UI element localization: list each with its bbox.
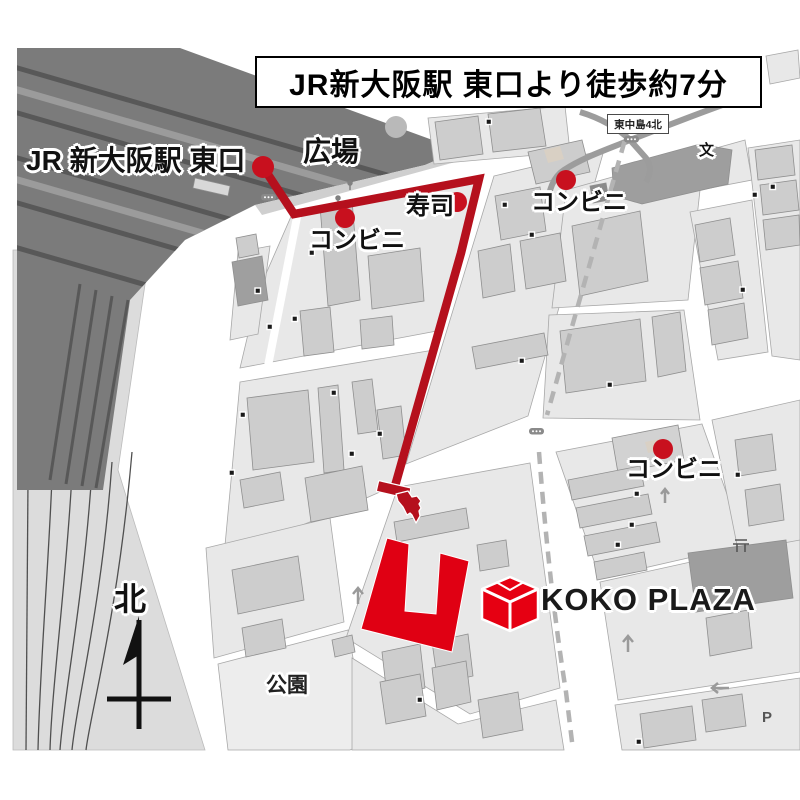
- plaza-label: 広場: [303, 137, 359, 166]
- poi-label-convenience-1: コンビニ: [309, 228, 405, 253]
- access-title: JR新大阪駅 東口より徒歩約7分: [255, 56, 762, 108]
- station-exit-dot: [252, 156, 274, 178]
- access-map: JR新大阪駅 東口より徒歩約7分 JR 新大阪駅 東口 広場 コンビニ 寿司 コ…: [0, 0, 800, 800]
- poi-label-sushi: 寿司: [406, 194, 454, 219]
- north-label: 北: [114, 583, 146, 617]
- map-canvas: [0, 0, 800, 800]
- koko-plaza-logo-cube-icon: [482, 577, 538, 631]
- plaza-circle: [385, 116, 407, 138]
- poi-label-convenience-3: コンビニ: [626, 457, 722, 482]
- intersection-sign: 東中島4北: [607, 114, 669, 134]
- poi-dot-convenience-1: [335, 208, 355, 228]
- station-exit-label: JR 新大阪駅 東口: [26, 146, 245, 175]
- poi-dot-convenience-2: [556, 170, 576, 190]
- parking-mark-label: P: [762, 710, 772, 726]
- park-label: 公園: [266, 675, 308, 697]
- poi-label-convenience-2: コンビニ: [531, 190, 627, 215]
- school-mark-label: 文: [699, 143, 714, 159]
- koko-plaza-logo-text: KOKO PLAZA: [541, 584, 756, 617]
